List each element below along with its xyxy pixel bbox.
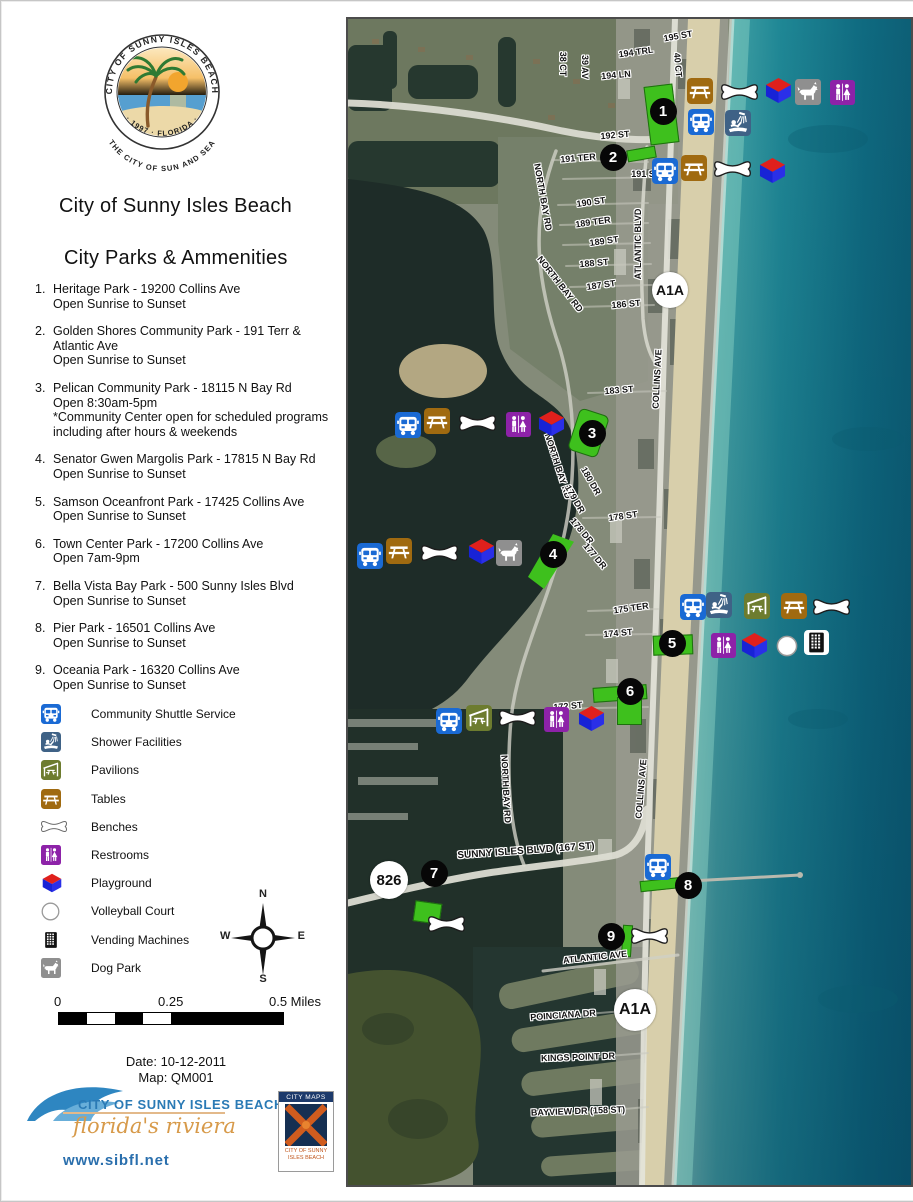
bench-icon — [714, 160, 751, 178]
playground-icon — [577, 705, 606, 732]
route-badge-a1a: A1A — [652, 272, 688, 308]
compass-star-icon — [223, 891, 303, 983]
park-description: Heritage Park - 19200 Collins AveOpen Su… — [53, 282, 240, 311]
playground-icon — [758, 157, 787, 184]
park-marker-3: 3 — [579, 420, 606, 447]
legend-row-pavilion: Pavilions — [41, 756, 301, 784]
legend-label: Pavilions — [91, 763, 139, 777]
park-description: Town Center Park - 17200 Collins AveOpen… — [53, 537, 263, 566]
park-number: 1. — [35, 282, 53, 311]
route-badge-a1a: A1A — [614, 989, 656, 1031]
park-marker-5: 5 — [659, 630, 686, 657]
legend-label: Shower Facilities — [91, 735, 182, 749]
park-number: 7. — [35, 579, 53, 608]
park-number: 5. — [35, 495, 53, 524]
bench-icon — [721, 83, 758, 101]
park-number: 4. — [35, 452, 53, 481]
volleyball-icon — [41, 902, 91, 921]
park-text-line: Golden Shores Community Park - 191 Terr … — [53, 324, 301, 339]
shower-icon — [41, 732, 91, 752]
legend-row-restroom: Restrooms — [41, 841, 301, 869]
bench-icon — [428, 915, 465, 933]
shuttle-icon — [357, 543, 383, 569]
restroom-icon — [41, 845, 91, 865]
map-document-page: CITY OF SUNNY ISLES BEACH · 1997 · FLORI… — [0, 0, 913, 1202]
tables-icon — [781, 593, 807, 619]
tables-icon — [386, 538, 412, 564]
legend-row-shuttle: Community Shuttle Service — [41, 700, 301, 728]
citymaps-title: CITY MAPS — [279, 1092, 333, 1102]
street-label: 39 AV — [580, 55, 590, 79]
restroom-icon — [711, 633, 736, 658]
page-title: City of Sunny Isles Beach — [59, 195, 292, 218]
legend-label: Dog Park — [91, 961, 141, 975]
dog-icon — [41, 958, 91, 978]
park-text-line: Heritage Park - 19200 Collins Ave — [53, 282, 240, 297]
tables-icon — [424, 408, 450, 434]
park-list: 1.Heritage Park - 19200 Collins AveOpen … — [35, 282, 341, 705]
legend-label: Benches — [91, 820, 138, 834]
legend-label: Community Shuttle Service — [91, 707, 236, 721]
legend-row-bench: Benches — [41, 813, 301, 841]
park-marker-1: 1 — [650, 98, 677, 125]
restroom-icon — [544, 707, 569, 732]
park-list-item: 6.Town Center Park - 17200 Collins AveOp… — [35, 537, 341, 566]
park-text-line: Pelican Community Park - 18115 N Bay Rd — [53, 381, 328, 396]
footer-city-name: CITY OF SUNNY ISLES BEACH — [78, 1097, 284, 1112]
park-text-line: Open 8:30am-5pm — [53, 396, 328, 411]
park-number: 6. — [35, 537, 53, 566]
scale-quarter: 0.25 — [158, 994, 183, 1009]
dog-icon — [795, 79, 821, 105]
bench-icon — [459, 414, 496, 432]
footer-website-link[interactable]: www.sibfl.net — [63, 1152, 170, 1169]
park-number: 3. — [35, 381, 53, 439]
shuttle-icon — [688, 109, 714, 135]
park-text-line: Town Center Park - 17200 Collins Ave — [53, 537, 263, 552]
vending-icon — [804, 630, 829, 655]
park-number: 8. — [35, 621, 53, 650]
park-text-line: Senator Gwen Margolis Park - 17815 N Bay… — [53, 452, 316, 467]
scale-zero: 0 — [54, 994, 61, 1009]
park-text-line: Pier Park - 16501 Collins Ave — [53, 621, 215, 636]
park-text-line: Open Sunrise to Sunset — [53, 678, 240, 693]
playground-icon — [41, 873, 91, 893]
street-label: 38 CT — [558, 52, 568, 77]
park-text-line: Open Sunrise to Sunset — [53, 509, 304, 524]
volleyball-icon — [776, 635, 798, 657]
park-list-item: 2.Golden Shores Community Park - 191 Ter… — [35, 324, 341, 368]
playground-icon — [740, 632, 769, 659]
tables-icon — [687, 78, 713, 104]
legend-label: Volleyball Court — [91, 904, 174, 918]
legend-label: Tables — [91, 792, 126, 806]
park-marker-8: 8 — [675, 872, 702, 899]
park-text-line: Bella Vista Bay Park - 500 Sunny Isles B… — [53, 579, 294, 594]
citymaps-logo: CITY MAPS CITY OF SUNNY ISLES BEACH — [278, 1091, 334, 1172]
park-description: Pier Park - 16501 Collins AveOpen Sunris… — [53, 621, 215, 650]
restroom-icon — [830, 80, 855, 105]
park-description: Senator Gwen Margolis Park - 17815 N Bay… — [53, 452, 316, 481]
scale-bar — [58, 1012, 284, 1025]
park-text-line: Open Sunrise to Sunset — [53, 636, 215, 651]
park-text-line: Atlantic Ave — [53, 339, 301, 354]
bench-icon — [421, 544, 458, 562]
park-description: Bella Vista Bay Park - 500 Sunny Isles B… — [53, 579, 294, 608]
park-description: Samson Oceanfront Park - 17425 Collins A… — [53, 495, 304, 524]
park-description: Oceania Park - 16320 Collins AveOpen Sun… — [53, 663, 240, 692]
playground-icon — [764, 77, 793, 104]
citymaps-caption-2: ISLES BEACH — [279, 1155, 333, 1162]
legend-row-tables: Tables — [41, 785, 301, 813]
park-number: 2. — [35, 324, 53, 368]
park-list-item: 3.Pelican Community Park - 18115 N Bay R… — [35, 381, 341, 439]
legend-label: Playground — [91, 876, 152, 890]
street-label: ATLANTIC BLVD — [633, 209, 643, 280]
legend-label: Vending Machines — [91, 933, 189, 947]
aerial-map: 195 ST194 TRL194 LN38 CT39 AV40 CT192 ST… — [346, 17, 913, 1187]
date-line: Date: 10-12-2011 — [1, 1054, 351, 1069]
playground-icon — [467, 538, 496, 565]
park-description: Pelican Community Park - 18115 N Bay RdO… — [53, 381, 328, 439]
legend-label: Restrooms — [91, 848, 149, 862]
park-marker-4: 4 — [540, 541, 567, 568]
park-text-line: Open Sunrise to Sunset — [53, 594, 294, 609]
restroom-icon — [506, 412, 531, 437]
dog-icon — [496, 540, 522, 566]
park-number: 9. — [35, 663, 53, 692]
pavilion-icon — [41, 760, 91, 780]
pavilion-icon — [744, 593, 770, 619]
legend-row-shower: Shower Facilities — [41, 728, 301, 756]
city-seal: CITY OF SUNNY ISLES BEACH · 1997 · FLORI… — [91, 25, 233, 175]
park-marker-6: 6 — [617, 678, 644, 705]
citymaps-emblem-icon — [285, 1104, 327, 1146]
park-list-item: 8.Pier Park - 16501 Collins AveOpen Sunr… — [35, 621, 341, 650]
bench-icon — [41, 820, 91, 833]
shuttle-icon — [652, 158, 678, 184]
park-list-item: 4.Senator Gwen Margolis Park - 17815 N B… — [35, 452, 341, 481]
compass-rose: N S W E — [223, 891, 303, 983]
page-subtitle: City Parks & Ammenities — [64, 247, 288, 270]
park-text-line: Samson Oceanfront Park - 17425 Collins A… — [53, 495, 304, 510]
bench-icon — [813, 598, 850, 616]
bench-icon — [631, 927, 668, 945]
pavilion-icon — [466, 705, 492, 731]
park-list-item: 5.Samson Oceanfront Park - 17425 Collins… — [35, 495, 341, 524]
bench-icon — [499, 709, 536, 727]
park-marker-9: 9 — [598, 923, 625, 950]
footer-tagline: florida's riviera — [73, 1114, 236, 1138]
playground-icon — [537, 410, 566, 437]
shower-icon — [706, 592, 732, 618]
tables-icon — [41, 789, 91, 809]
shuttle-icon — [436, 708, 462, 734]
park-text-line: Oceania Park - 16320 Collins Ave — [53, 663, 240, 678]
shuttle-icon — [680, 594, 706, 620]
citymaps-caption-1: CITY OF SUNNY — [279, 1148, 333, 1155]
park-marker-7: 7 — [421, 860, 448, 887]
shower-icon — [725, 110, 751, 136]
park-description: Golden Shores Community Park - 191 Terr … — [53, 324, 301, 368]
park-marker-2: 2 — [600, 144, 627, 171]
shuttle-icon — [41, 704, 91, 724]
park-text-line: *Community Center open for scheduled pro… — [53, 410, 328, 425]
route-badge-826: 826 — [370, 861, 408, 899]
scale-half: 0.5 Miles — [269, 994, 321, 1009]
shuttle-icon — [645, 854, 671, 880]
vending-icon — [41, 930, 91, 950]
park-text-line: Open Sunrise to Sunset — [53, 297, 240, 312]
park-text-line: Open Sunrise to Sunset — [53, 353, 301, 368]
park-list-item: 1.Heritage Park - 19200 Collins AveOpen … — [35, 282, 341, 311]
park-text-line: Open 7am-9pm — [53, 551, 263, 566]
street-label: 40 CT — [672, 52, 684, 77]
tables-icon — [681, 155, 707, 181]
park-text-line: Open Sunrise to Sunset — [53, 467, 316, 482]
shuttle-icon — [395, 412, 421, 438]
park-list-item: 9.Oceania Park - 16320 Collins AveOpen S… — [35, 663, 341, 692]
park-list-item: 7.Bella Vista Bay Park - 500 Sunny Isles… — [35, 579, 341, 608]
park-text-line: including after hours & weekends — [53, 425, 328, 440]
